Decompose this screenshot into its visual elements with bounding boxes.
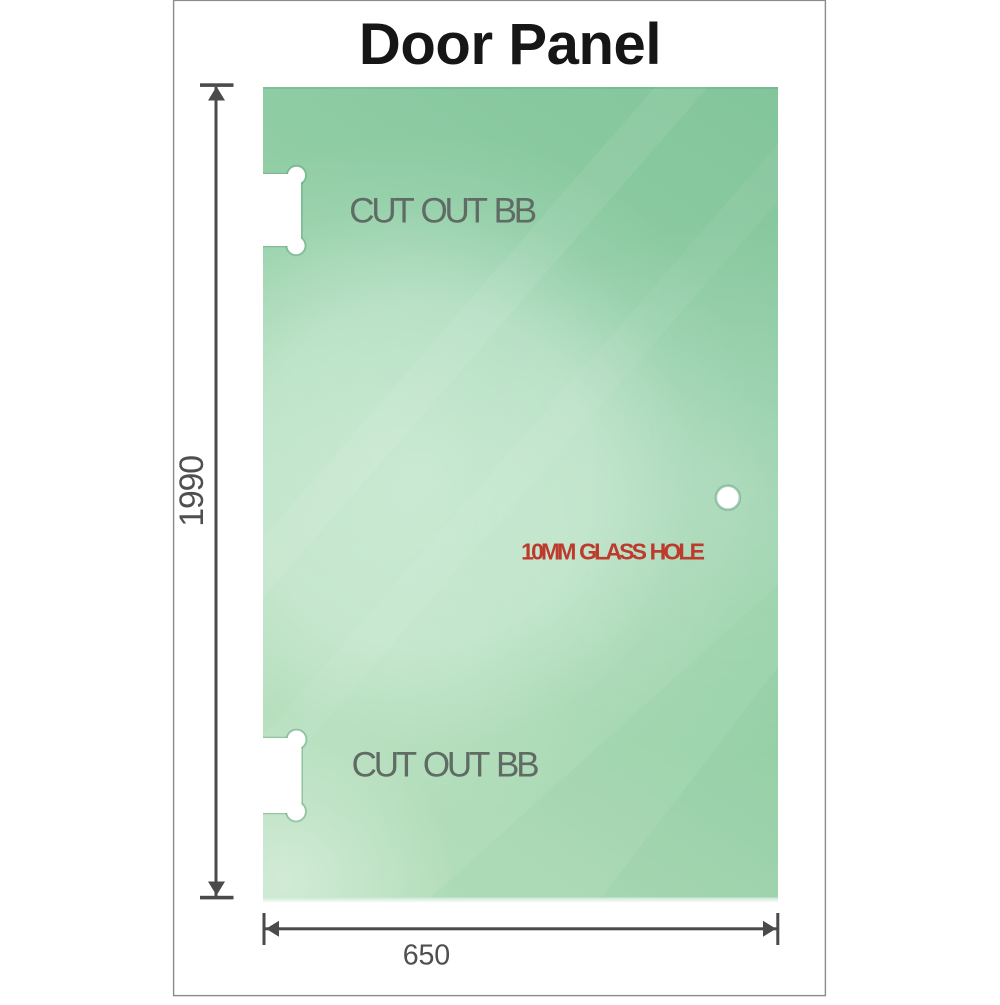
svg-text:10MM GLASS HOLE: 10MM GLASS HOLE bbox=[521, 538, 704, 564]
svg-text:650: 650 bbox=[403, 940, 450, 972]
svg-text:CUT OUT BB: CUT OUT BB bbox=[349, 192, 536, 231]
svg-text:CUT OUT BB: CUT OUT BB bbox=[352, 746, 539, 785]
svg-text:1990: 1990 bbox=[173, 456, 211, 527]
svg-text:Door Panel: Door Panel bbox=[359, 12, 661, 77]
